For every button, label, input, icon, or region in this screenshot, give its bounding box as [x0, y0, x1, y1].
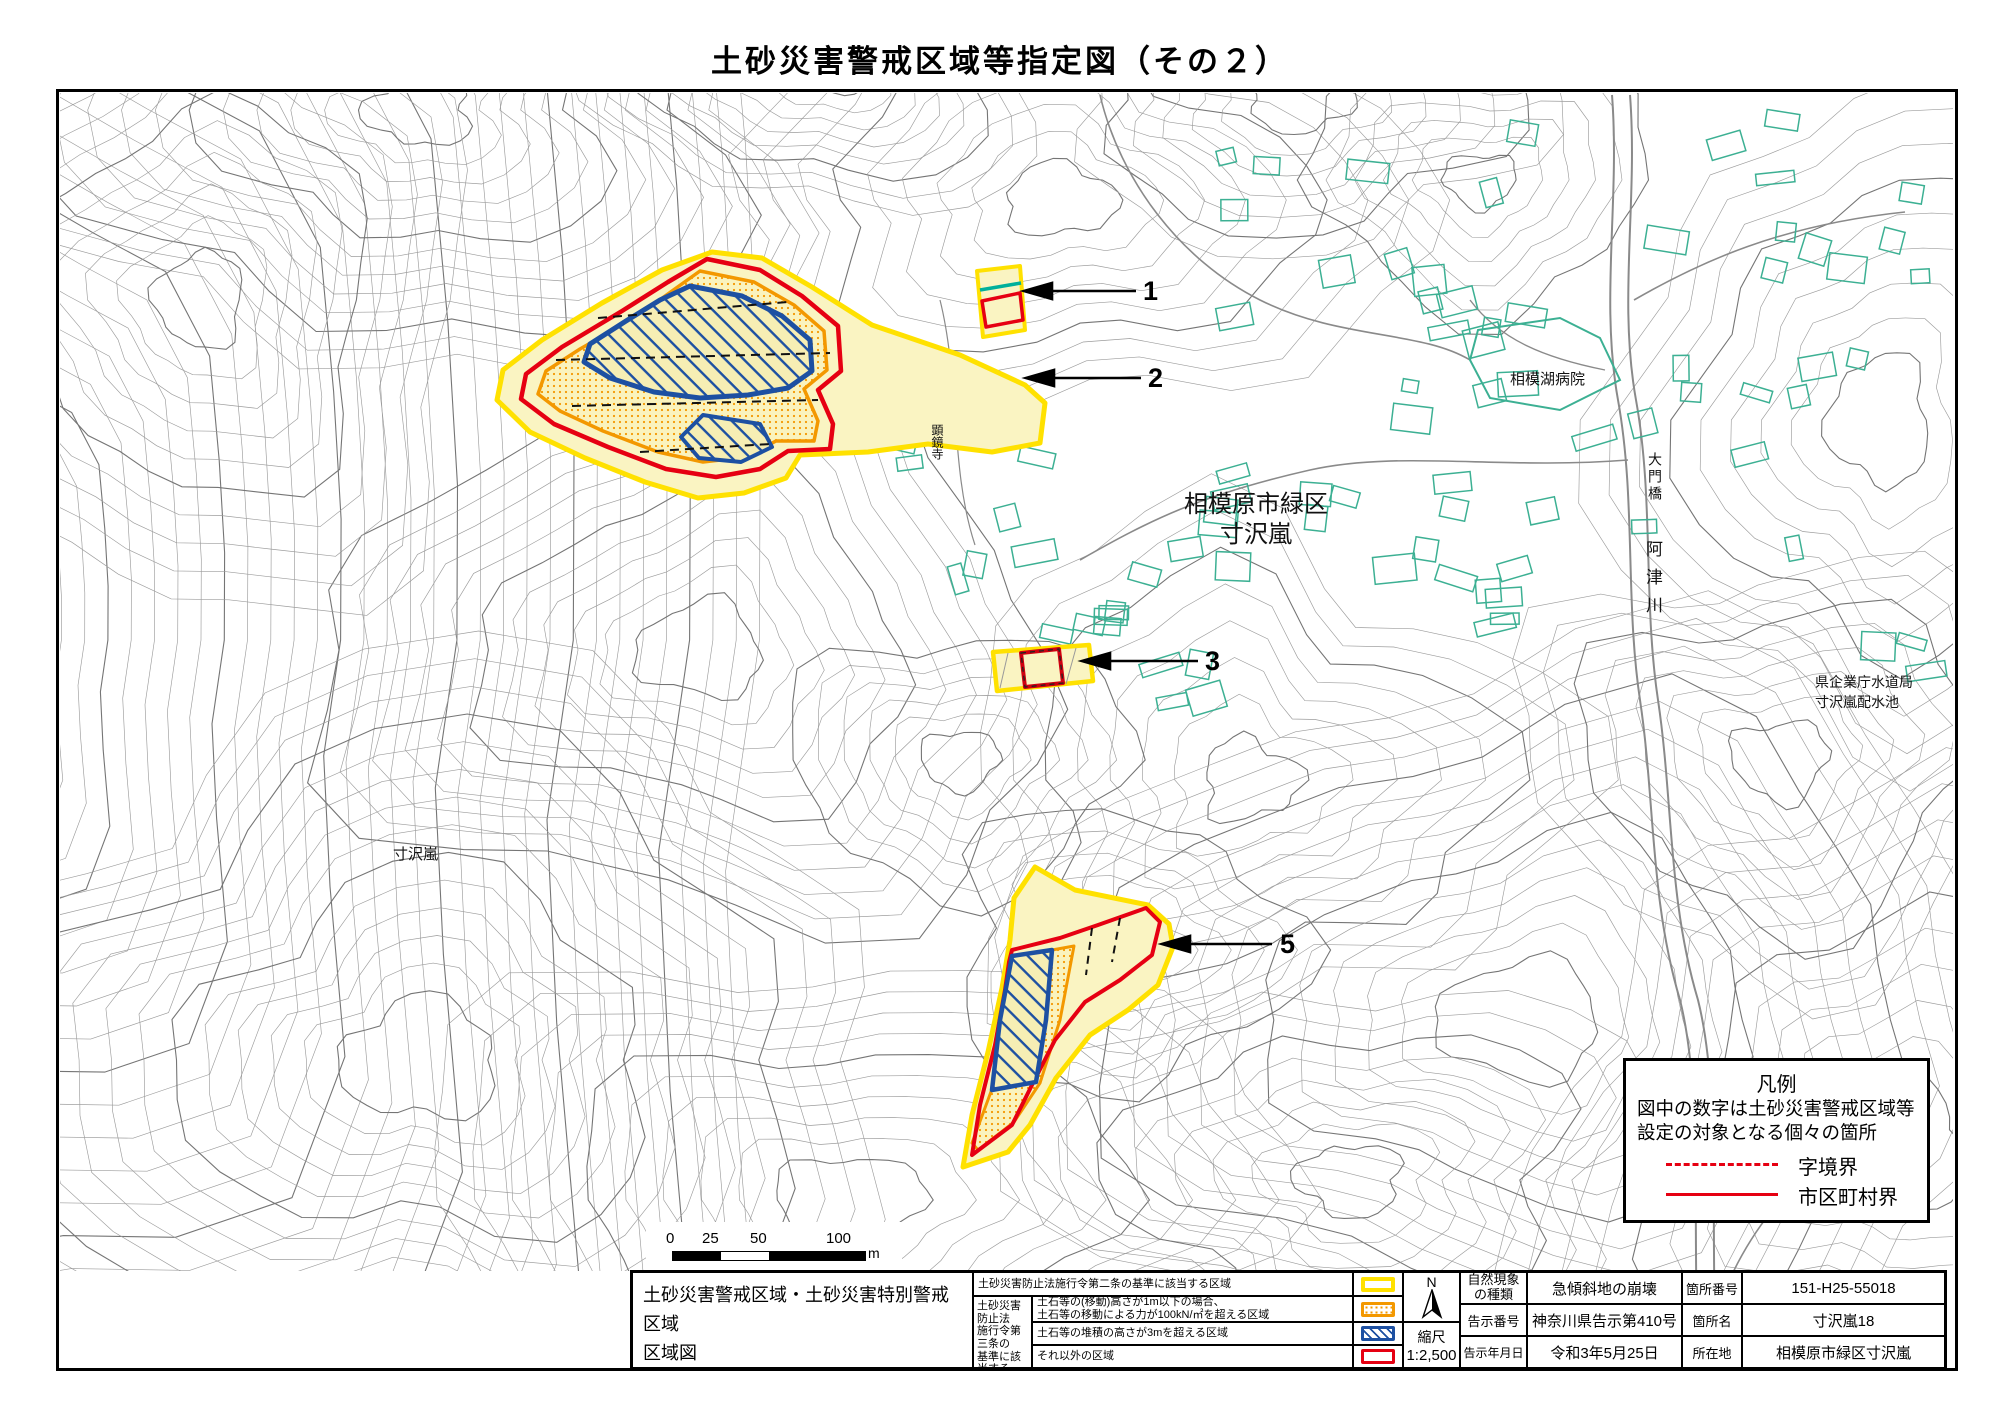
- info-label-phenomenon: 自然現象 の種類: [1460, 1272, 1527, 1304]
- law3-area-label: 土砂災害防止法 施行令第三条の 基準に該当する 区域: [973, 1296, 1032, 1368]
- label-city-district: 相模原市緑区 寸沢嵐: [1140, 490, 1372, 550]
- north-label: N: [1426, 1275, 1436, 1289]
- law2-area-label: 土砂災害防止法施行令第二条の基準に該当する区域: [973, 1272, 1353, 1296]
- special-area-desc-2: 土石等の堆積の高さが3mを超える区域: [1032, 1322, 1353, 1345]
- label-hamlet: 寸沢嵐: [393, 843, 438, 864]
- scale-tick-100: 100: [826, 1230, 851, 1247]
- legend-title: 凡例: [1626, 1068, 1927, 1097]
- other-area-desc: それ以外の区域: [1032, 1345, 1353, 1368]
- legend-item-aza-boundary: 字境界: [1798, 1151, 1858, 1180]
- swatch-cell-blue: [1353, 1322, 1403, 1345]
- legend-solid-line: [1666, 1193, 1778, 1196]
- info-label-notice-number: 告示番号: [1460, 1304, 1527, 1336]
- legend-box: 凡例 図中の数字は土砂災害警戒区域等 設定の対象となる個々の箇所 字境界 市区町…: [1623, 1058, 1930, 1223]
- hazard-zone-1: [977, 266, 1025, 337]
- info-value-notice-date: 令和3年5月25日: [1527, 1336, 1682, 1368]
- label-waterworks: 県企業庁水道局 寸沢嵐配水池: [1815, 672, 1913, 713]
- north-arrow-cell: N: [1403, 1272, 1460, 1322]
- zone-marker-2: 2: [1148, 363, 1163, 394]
- scale-cell: 縮尺 1:2,500: [1403, 1322, 1460, 1368]
- zone-marker-3: 3: [1205, 646, 1220, 677]
- label-hospital: 相模湖病院: [1510, 368, 1585, 389]
- page: 土砂災害警戒区域等指定図（その２）: [0, 0, 2000, 1414]
- legend-note: 図中の数字は土砂災害警戒区域等 設定の対象となる個々の箇所: [1637, 1097, 1915, 1146]
- swatch-cell-yellow: [1353, 1272, 1403, 1296]
- zone-marker-1: 1: [1143, 276, 1158, 307]
- info-value-location: 相模原市緑区寸沢嵐: [1742, 1336, 1945, 1368]
- legend-item-municipal-boundary: 市区町村界: [1798, 1181, 1898, 1210]
- other-area-swatch: [1361, 1349, 1395, 1364]
- swatch-cell-orange: [1353, 1296, 1403, 1322]
- info-label-location: 所在地: [1682, 1336, 1742, 1368]
- title-block-table: 土砂災害警戒区域・土砂災害特別警戒区域 区域図 土砂災害防止法施行令第二条の基準…: [632, 1272, 1945, 1368]
- scale-tick-25: 25: [702, 1230, 719, 1247]
- info-value-phenomenon: 急傾斜地の崩壊: [1527, 1272, 1682, 1304]
- scale-tick-50: 50: [750, 1230, 767, 1247]
- info-value-notice-number: 神奈川県告示第410号: [1527, 1304, 1682, 1336]
- scale-bar: 0 25 50 100 m: [660, 1230, 900, 1272]
- special-area-swatch-orange: [1361, 1302, 1395, 1317]
- label-temple: 顕鏡寺: [929, 424, 946, 460]
- special-area-swatch-blue: [1361, 1326, 1395, 1341]
- info-label-site-number: 箇所番号: [1682, 1272, 1742, 1304]
- scale-value: 1:2,500: [1406, 1347, 1456, 1364]
- scale-label: 縮尺: [1418, 1327, 1446, 1347]
- scale-tick-0: 0: [666, 1230, 674, 1247]
- scale-bar-rule: [672, 1251, 866, 1261]
- zone-marker-5: 5: [1280, 929, 1295, 960]
- scale-unit: m: [868, 1245, 880, 1261]
- legend-dashed-line: [1666, 1163, 1778, 1166]
- info-label-notice-date: 告示年月日: [1460, 1336, 1527, 1368]
- warning-area-swatch: [1361, 1277, 1395, 1292]
- map-sheet-title: 土砂災害警戒区域・土砂災害特別警戒区域 区域図: [632, 1272, 973, 1368]
- hazard-zone-2: [497, 252, 1045, 498]
- swatch-cell-red: [1353, 1345, 1403, 1368]
- special-area-desc-1: 土石等の(移動)高さが1m以下の場合、 土石等の移動による力が100kN/㎡を超…: [1032, 1296, 1353, 1322]
- info-label-site-name: 箇所名: [1682, 1304, 1742, 1336]
- label-bridge: 大門橋: [1645, 452, 1665, 503]
- label-river: 阿津川: [1640, 540, 1665, 624]
- info-value-site-name: 寸沢嵐18: [1742, 1304, 1945, 1336]
- hazard-zone-5: [963, 867, 1173, 1167]
- info-value-site-number: 151-H25-55018: [1742, 1272, 1945, 1304]
- hazard-zone-3: [993, 645, 1093, 691]
- north-arrow-icon: [1421, 1289, 1443, 1319]
